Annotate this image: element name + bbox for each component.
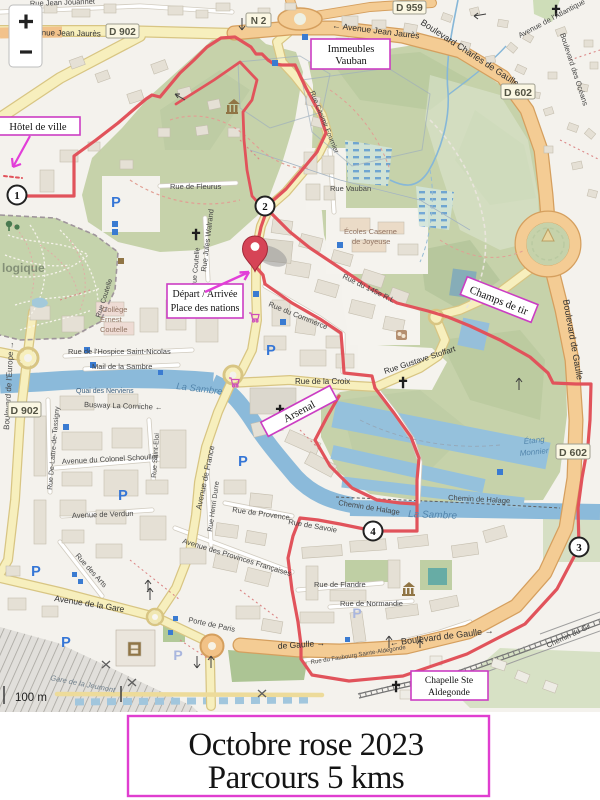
svg-text:3: 3 bbox=[576, 542, 582, 554]
svg-text:1: 1 bbox=[14, 190, 20, 202]
svg-text:Immeubles: Immeubles bbox=[328, 44, 375, 55]
svg-text:2: 2 bbox=[262, 201, 268, 213]
svg-text:Parcours 5 kms: Parcours 5 kms bbox=[208, 760, 404, 796]
svg-text:Vauban: Vauban bbox=[335, 56, 367, 67]
svg-text:Aldegonde: Aldegonde bbox=[428, 688, 470, 698]
svg-text:Octobre rose 2023: Octobre rose 2023 bbox=[188, 727, 423, 763]
svg-text:4: 4 bbox=[370, 526, 376, 538]
svg-text:Hôtel de ville: Hôtel de ville bbox=[9, 122, 66, 133]
svg-text:Chapelle Ste: Chapelle Ste bbox=[425, 676, 473, 686]
svg-text:Place des nations: Place des nations bbox=[171, 303, 240, 314]
